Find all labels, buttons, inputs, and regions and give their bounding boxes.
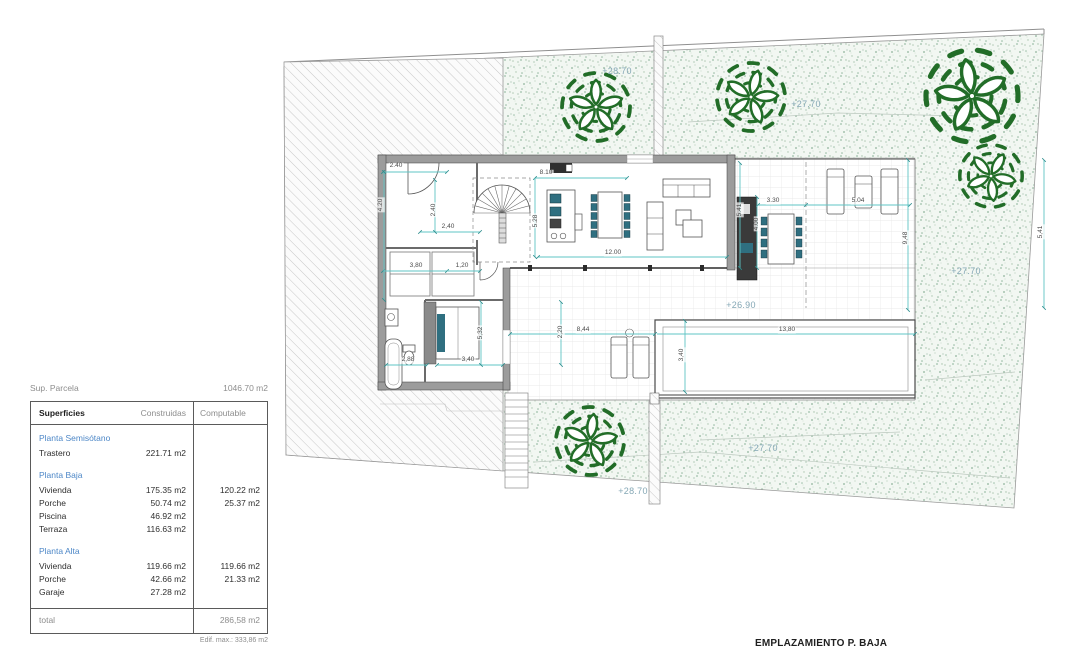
parcel-summary-label: Sup. Parcela: [30, 383, 79, 393]
areas-panel: Sup. Parcela 1046.70 m2 Superficies Cons…: [30, 383, 268, 644]
header-superficies: Superficies: [31, 407, 119, 420]
header-construidas: Construidas: [119, 407, 193, 420]
row-construidas: 46.92 m2: [119, 510, 193, 523]
table-header: Superficies Construidas Computable: [31, 402, 267, 425]
parcel-summary: Sup. Parcela 1046.70 m2: [30, 383, 268, 393]
row-construidas: 175.35 m2: [119, 484, 193, 497]
dimension-label: 9,48: [903, 231, 910, 246]
table-row: Porche 42.66 m2 21.33 m2: [31, 573, 267, 586]
elevation-label: +26.90: [726, 300, 756, 310]
row-name: Vivienda: [31, 560, 119, 573]
dimension-label: 1,20: [455, 263, 470, 270]
dimension-label: 4.00: [754, 217, 761, 232]
table-row: Garaje 27.28 m2: [31, 586, 267, 599]
section-title: Planta Semisótano: [31, 433, 267, 443]
dimension-label: 2.40: [389, 163, 404, 170]
section-title: Planta Baja: [31, 470, 267, 480]
elevation-label: +28.70: [618, 486, 648, 496]
areas-table: Superficies Construidas Computable Plant…: [30, 401, 268, 634]
dimension-label: 8.10: [539, 170, 554, 177]
row-computable: [193, 523, 267, 536]
dimension-label: 2,40: [441, 224, 456, 231]
porch-loungers: [827, 169, 898, 214]
total-value: 286,58 m2: [193, 614, 267, 627]
dining-table: [591, 192, 630, 238]
elevation-label: +28.70: [602, 66, 632, 76]
row-computable: 119.66 m2: [193, 560, 267, 573]
dimension-label: 5,32: [478, 326, 485, 341]
total-label: total: [31, 614, 119, 627]
dimension-label: 5.41: [737, 203, 744, 218]
elevation-label: +27.70: [951, 266, 981, 276]
row-computable: 120.22 m2: [193, 484, 267, 497]
dimension-label: 2,20: [558, 325, 565, 340]
dimension-label: 12.00: [604, 250, 622, 257]
section-title: Planta Alta: [31, 546, 267, 556]
table-row: Trastero 221.71 m2: [31, 447, 267, 460]
table-row: Piscina 46.92 m2: [31, 510, 267, 523]
dimension-label: 3,80: [409, 263, 424, 270]
table-row: Vivienda 119.66 m2 119.66 m2: [31, 560, 267, 573]
row-name: Porche: [31, 573, 119, 586]
dimension-label: 5.28: [533, 214, 540, 229]
parcel-summary-value: 1046.70 m2: [223, 383, 268, 393]
dimension-label: 2,88: [401, 357, 416, 364]
table-row: Terraza 116.63 m2: [31, 523, 267, 536]
row-computable: [193, 586, 267, 599]
row-name: Piscina: [31, 510, 119, 523]
row-computable: [193, 447, 267, 460]
row-name: Garaje: [31, 586, 119, 599]
plan-title: EMPLAZAMIENTO P. BAJA: [755, 638, 887, 649]
row-construidas: 42.66 m2: [119, 573, 193, 586]
garden-stairs: [505, 393, 528, 488]
dimension-label: 4.20: [378, 198, 385, 213]
row-name: Vivienda: [31, 484, 119, 497]
header-computable: Computable: [193, 407, 267, 420]
bed: [424, 302, 479, 364]
row-construidas: 221.71 m2: [119, 447, 193, 460]
total-row: total 286,58 m2: [31, 608, 267, 633]
dimension-label: 2.40: [431, 203, 438, 218]
elevation-label: +27.70: [791, 99, 821, 109]
dimension-label: 3,40: [461, 357, 476, 364]
table-divider: [193, 402, 194, 633]
pool-post: [650, 393, 659, 404]
row-computable: 21.33 m2: [193, 573, 267, 586]
row-construidas: 116.63 m2: [119, 523, 193, 536]
row-computable: [193, 510, 267, 523]
row-computable: 25.37 m2: [193, 497, 267, 510]
row-name: Terraza: [31, 523, 119, 536]
row-name: Trastero: [31, 447, 119, 460]
table-row: Porche 50.74 m2 25.37 m2: [31, 497, 267, 510]
porch-dining-table: [761, 214, 802, 264]
row-construidas: 119.66 m2: [119, 560, 193, 573]
edificability-note: Edif. max.: 333,86 m2: [30, 637, 268, 644]
dimension-label: 3.30: [766, 198, 781, 205]
table-row: Vivienda 175.35 m2 120.22 m2: [31, 484, 267, 497]
row-name: Porche: [31, 497, 119, 510]
dimension-label: 3,40: [679, 348, 686, 363]
dimension-label: 5,41: [1038, 225, 1045, 240]
dimension-label: 8,44: [576, 327, 591, 334]
dimension-label: 5.04: [851, 198, 866, 205]
elevation-label: +27.70: [748, 443, 778, 453]
row-construidas: 50.74 m2: [119, 497, 193, 510]
dimension-label: 13,80: [778, 327, 796, 334]
row-construidas: 27.28 m2: [119, 586, 193, 599]
site-plan-page: 2.404.202.402,403,801,202,883,405,328.10…: [0, 0, 1070, 650]
